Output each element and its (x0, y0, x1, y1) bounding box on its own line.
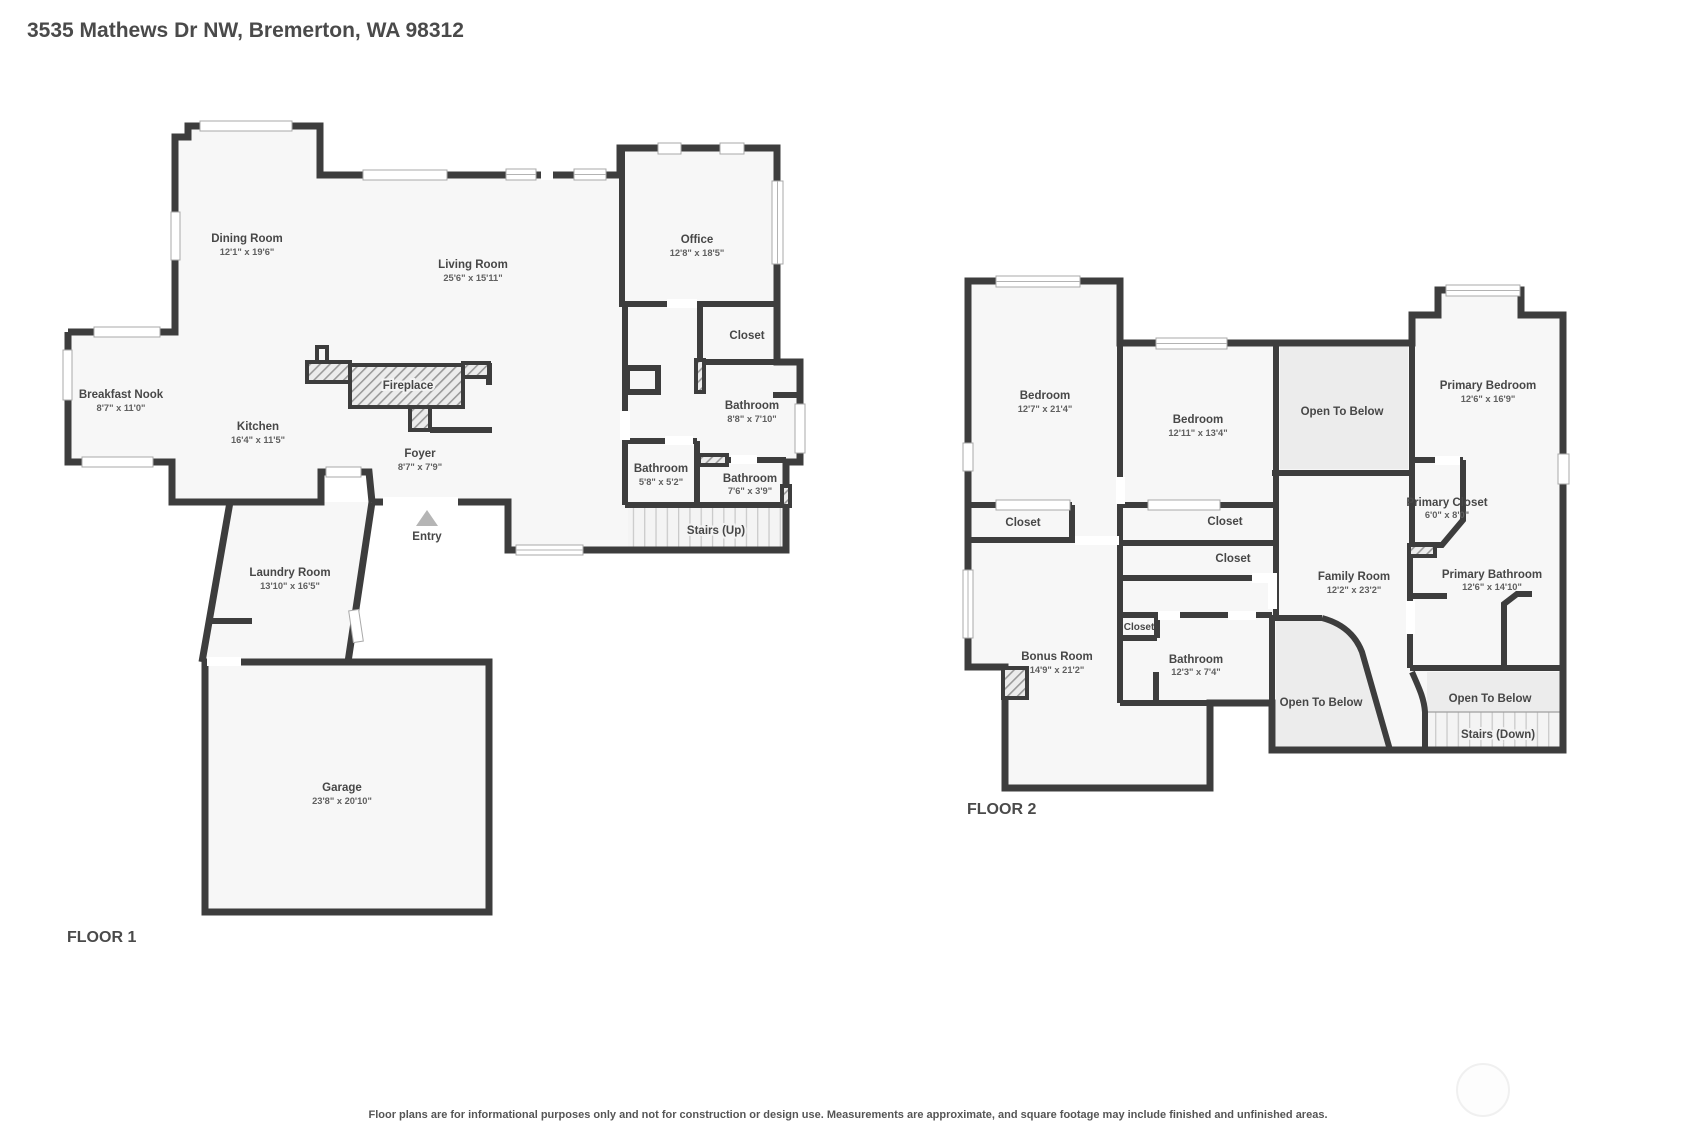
room-dims-breakfast: 8'7" x 11'0" (97, 403, 146, 413)
floorplan-page: 3535 Mathews Dr NW, Bremerton, WA 98312 (0, 0, 1697, 1131)
room-label-stairs-up: Stairs (Up) (687, 525, 745, 537)
room-dims-bath-tiny: 7'6" x 3'9" (728, 486, 772, 496)
room-dims-bath-f2: 12'3" x 7'4" (1171, 667, 1220, 677)
room-dims-primary-bath: 12'6" x 14'10" (1462, 582, 1522, 592)
room-label-breakfast: Breakfast Nook (79, 389, 164, 401)
room-label-bath-tiny: Bathroom (723, 473, 777, 485)
room-label-primary-bedroom: Primary Bedroom (1440, 380, 1537, 392)
room-label-stairs-down: Stairs (Down) (1461, 729, 1535, 741)
room-dims-dining: 12'1" x 19'6" (220, 247, 275, 257)
room-dims-bath-main: 8'8" x 7'10" (727, 414, 776, 424)
room-label-living: Living Room (438, 259, 508, 271)
room-label-family: Family Room (1318, 571, 1390, 583)
floor2-plan: Bedroom 12'7" x 21'4" Bedroom 12'11" x 1… (963, 276, 1569, 818)
room-dims-primary-closet: 6'0" x 8'0" (1425, 510, 1469, 520)
disclaimer-text: Floor plans are for informational purpos… (368, 1109, 1327, 1121)
room-label-bath-small: Bathroom (634, 463, 688, 475)
room-label-primary-closet: Primary Closet (1406, 497, 1487, 509)
room-label-closet-bed2b: Closet (1215, 553, 1250, 565)
room-label-otb-right: Open To Below (1449, 693, 1532, 705)
room-label-dining: Dining Room (211, 233, 283, 245)
room-label-foyer: Foyer (404, 448, 436, 460)
room-dims-bonus: 14'9" x 21'2" (1030, 665, 1085, 675)
room-label-bedroom2: Bedroom (1173, 414, 1223, 426)
room-label-entry: Entry (412, 531, 442, 543)
room-dims-bedroom2: 12'11" x 13'4" (1168, 428, 1227, 438)
floorplan-canvas: 3535 Mathews Dr NW, Bremerton, WA 98312 (0, 0, 1697, 1131)
room-dims-family: 12'2" x 23'2" (1327, 585, 1382, 595)
room-label-bath-f2: Bathroom (1169, 654, 1223, 666)
room-label-closet-bed1: Closet (1005, 517, 1040, 529)
room-dims-garage: 23'8" x 20'10" (312, 796, 372, 806)
room-dims-primary-bedroom: 12'6" x 16'9" (1461, 394, 1516, 404)
floor1-label: FLOOR 1 (67, 929, 136, 946)
room-label-otb-left: Open To Below (1280, 697, 1363, 709)
room-dims-living: 25'6" x 15'11" (443, 273, 502, 283)
room-dims-bath-small: 5'8" x 5'2" (639, 477, 683, 487)
room-label-bedroom1: Bedroom (1020, 390, 1070, 402)
room-dims-office: 12'8" x 18'5" (670, 248, 725, 258)
room-label-bonus: Bonus Room (1021, 651, 1093, 663)
room-label-office: Office (681, 234, 714, 246)
page-title: 3535 Mathews Dr NW, Bremerton, WA 98312 (27, 19, 464, 42)
watermark-circle (1457, 1064, 1509, 1116)
room-dims-laundry: 13'10" x 16'5" (260, 581, 320, 591)
room-label-closet-f1: Closet (729, 330, 764, 342)
floor2-label: FLOOR 2 (967, 801, 1036, 818)
room-label-laundry: Laundry Room (249, 567, 330, 579)
room-dims-bedroom1: 12'7" x 21'4" (1018, 404, 1073, 414)
room-label-fireplace: Fireplace (383, 380, 434, 392)
room-label-closet-hall: Closet (1124, 622, 1155, 633)
room-label-primary-bath: Primary Bathroom (1442, 569, 1542, 581)
room-dims-foyer: 8'7" x 7'9" (398, 462, 442, 472)
entry-direction-icon (416, 510, 438, 526)
floor1-plan: Dining Room 12'1" x 19'6" Living Room 25… (63, 121, 805, 946)
room-label-otb-top: Open To Below (1301, 406, 1384, 418)
room-label-bath-main: Bathroom (725, 400, 779, 412)
room-label-kitchen: Kitchen (237, 421, 279, 433)
room-label-closet-bed2a: Closet (1207, 516, 1242, 528)
room-label-garage: Garage (322, 782, 362, 794)
room-dims-kitchen: 16'4" x 11'5" (231, 435, 285, 445)
